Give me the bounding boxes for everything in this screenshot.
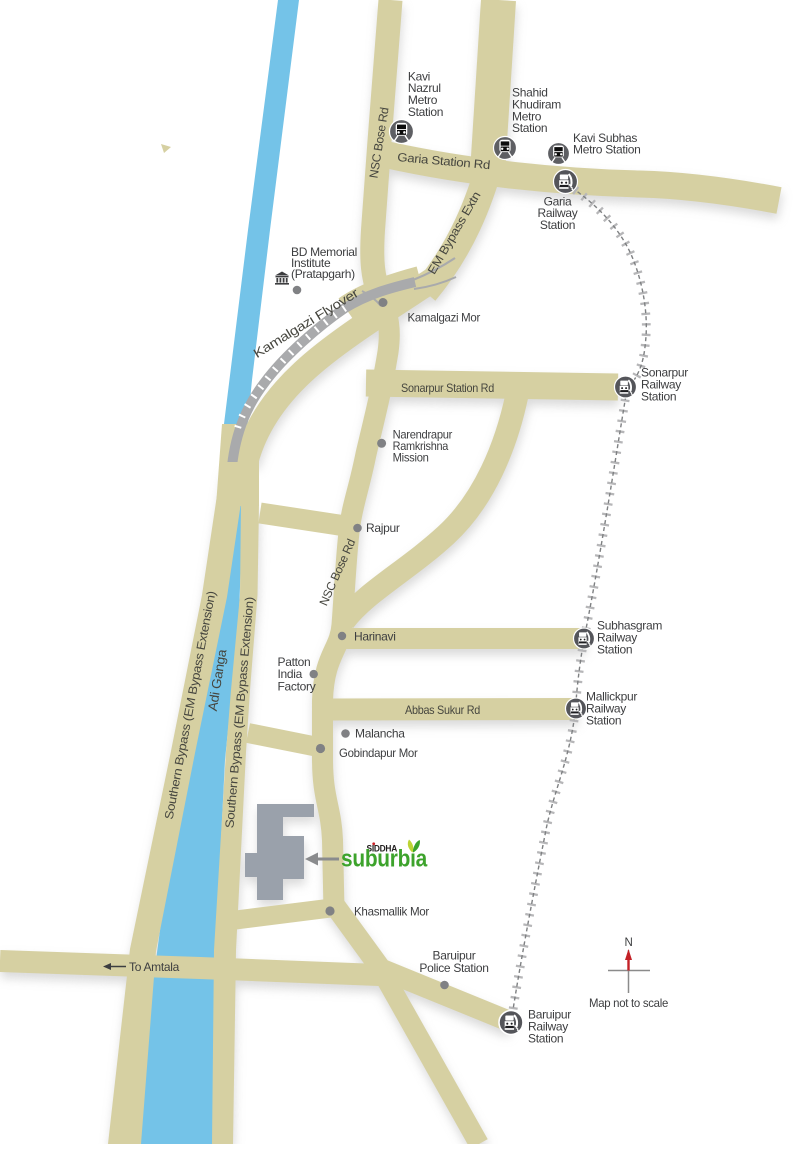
svg-text:Malancha: Malancha (355, 727, 405, 741)
svg-text:Station: Station (408, 105, 443, 119)
svg-text:Rajpur: Rajpur (366, 521, 400, 535)
svg-text:N: N (624, 937, 632, 949)
svg-text:Kamalgazi Mor: Kamalgazi Mor (408, 311, 481, 325)
svg-text:Station: Station (641, 389, 676, 403)
svg-text:Harinavi: Harinavi (354, 630, 396, 644)
svg-text:(Pratapgarh): (Pratapgarh) (291, 267, 355, 281)
svg-text:Metro Station: Metro Station (573, 143, 640, 157)
svg-text:Factory: Factory (278, 679, 316, 693)
svg-text:Station: Station (540, 218, 575, 232)
svg-text:Mission: Mission (393, 450, 429, 464)
svg-text:Station: Station (586, 713, 621, 727)
svg-text:Gobindapur Mor: Gobindapur Mor (339, 746, 418, 760)
svg-text:Sonarpur Station Rd: Sonarpur Station Rd (401, 381, 494, 395)
svg-text:To Amtala: To Amtala (129, 960, 180, 974)
svg-text:Abbas Sukur Rd: Abbas Sukur Rd (405, 703, 480, 717)
svg-text:Map not to scale: Map not to scale (589, 996, 669, 1010)
svg-text:Khasmallik Mor: Khasmallik Mor (354, 905, 429, 919)
svg-text:Police Station: Police Station (419, 961, 488, 975)
svg-text:Station: Station (597, 642, 632, 656)
svg-text:Station: Station (512, 121, 547, 135)
svg-text:Station: Station (528, 1031, 563, 1045)
